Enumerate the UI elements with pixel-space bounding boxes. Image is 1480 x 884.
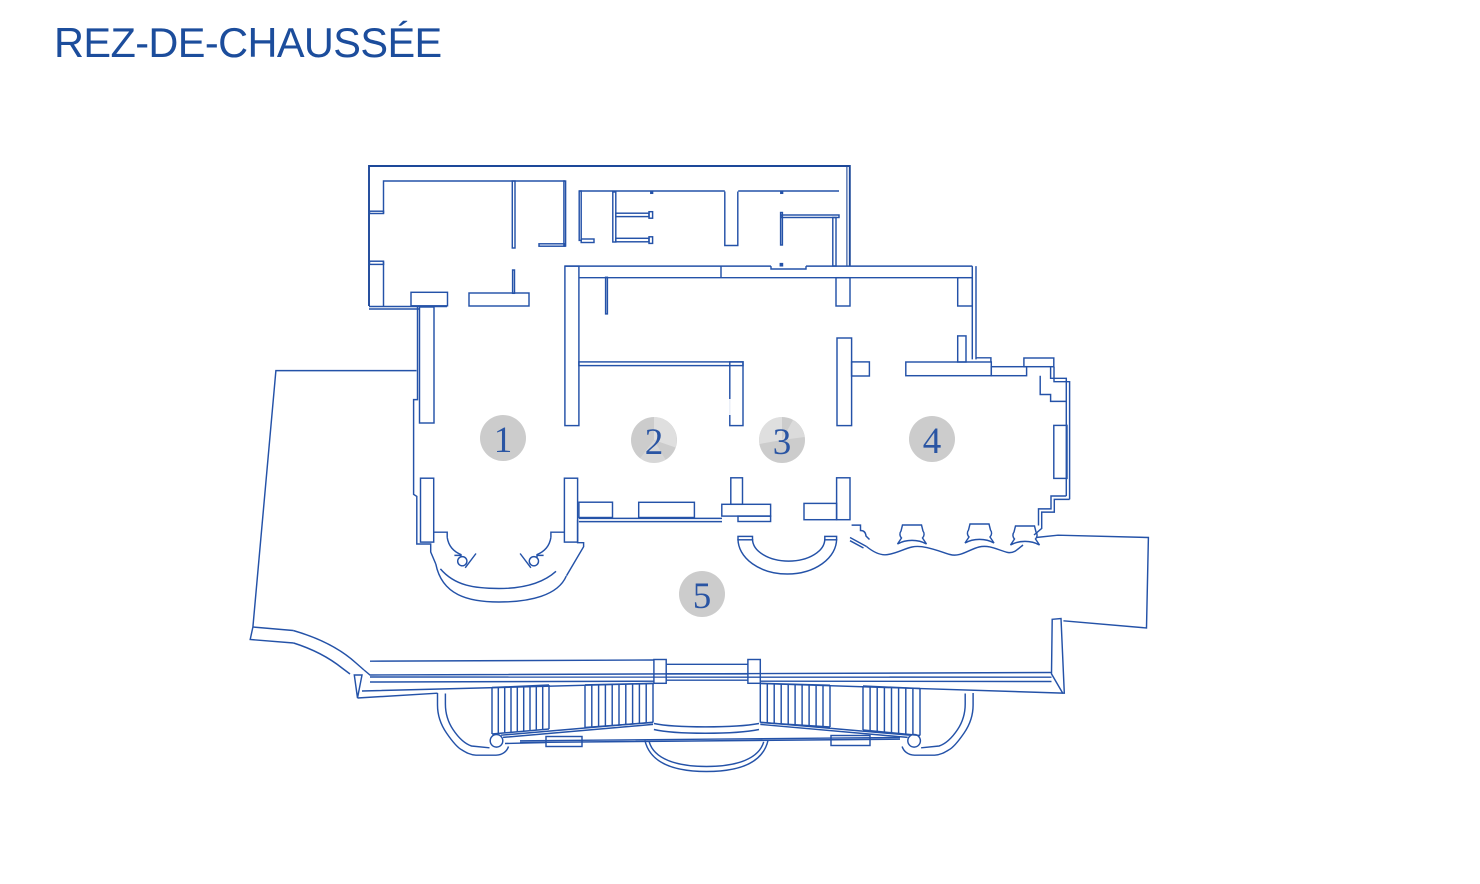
- svg-text:1: 1: [494, 420, 513, 461]
- svg-text:5: 5: [693, 576, 712, 617]
- svg-text:2: 2: [645, 422, 664, 463]
- svg-text:4: 4: [923, 421, 942, 462]
- svg-text:3: 3: [773, 422, 792, 463]
